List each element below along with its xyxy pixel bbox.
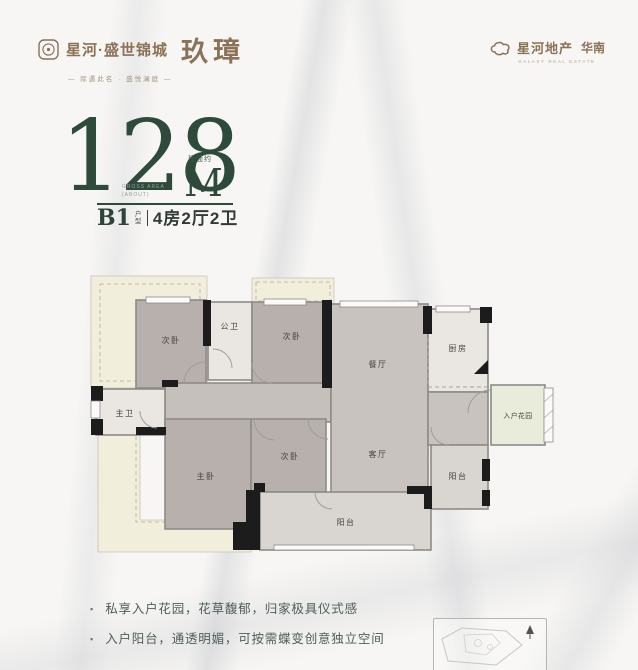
floorplan-svg: 次卧 公卫 次卧 餐厅 厨房 入户花园 主卫 主卧 次卧 客厅 阳台 阳台	[78, 262, 562, 574]
area-headline: 128 建面约 M2 Gross area (about)	[60, 112, 238, 202]
bullet-icon: ▪	[90, 601, 93, 618]
developer-region: 华南	[581, 39, 605, 56]
room-label-dining: 餐厅	[369, 360, 388, 369]
feature-text: 入户阳台，通透明媚，可按需蝶变创意独立空间	[105, 631, 384, 648]
room-label-entry-garden: 入户花园	[503, 411, 532, 420]
room-label-bath-master: 主卫	[116, 408, 135, 418]
unit-type-label: 户型	[135, 211, 143, 225]
feature-item: ▪ 入户阳台，通透明媚，可按需蝶变创意独立空间	[90, 631, 385, 648]
unit-summary: B1 户型 4房2厅2卫	[97, 207, 238, 229]
project-tagline: — 际遇此名 · 盛悦澜庭 —	[68, 73, 245, 83]
unit-spec: 4房2厅2卫	[153, 210, 238, 227]
room-label-bedroom-master: 主卧	[197, 471, 216, 481]
area-note: Gross area (about)	[122, 184, 165, 199]
developer-logo: 星河地产 华南 GALAXY REAL ESTATE	[488, 38, 605, 64]
floorplan-poster: 星河·盛世锦城 玖璋 — 际遇此名 · 盛悦澜庭 — 星河地产 华南 GALAX…	[0, 0, 638, 670]
project-name: 星河·盛世锦城	[66, 39, 168, 60]
unit-code: B1	[97, 207, 131, 229]
feature-text: 私享入户花园，花草馥郁，归家极具仪式感	[105, 601, 358, 618]
room-label-bedroom-top-mid: 次卧	[283, 331, 302, 341]
developer-name-en: GALAXY REAL ESTATE	[518, 59, 596, 64]
area-unit: M2	[184, 164, 234, 202]
product-name: 玖璋	[181, 30, 245, 69]
site-minimap-sketch	[434, 619, 544, 670]
feature-list: ▪ 私享入户花园，花草馥郁，归家极具仪式感 ▪ 入户阳台，通透明媚，可按需蝶变创…	[90, 601, 385, 661]
unit-divider	[147, 210, 148, 226]
project-logo: 星河·盛世锦城 玖璋 — 际遇此名 · 盛悦澜庭 —	[38, 30, 245, 83]
seal-icon	[38, 39, 59, 60]
room-label-bath-public: 公卫	[221, 322, 240, 331]
room-label-bedroom-mid: 次卧	[281, 451, 300, 461]
site-minimap	[433, 618, 547, 670]
feature-item: ▪ 私享入户花园，花草馥郁，归家极具仪式感	[90, 601, 385, 618]
room-label-balcony-south: 阳台	[337, 517, 356, 527]
developer-name: 星河地产	[517, 38, 573, 57]
bullet-icon: ▪	[90, 631, 93, 648]
north-arrow-icon	[526, 625, 534, 639]
floorplan: 次卧 公卫 次卧 餐厅 厨房 入户花园 主卫 主卧 次卧 客厅 阳台 阳台	[78, 262, 562, 574]
cloud-logo-icon	[488, 39, 512, 56]
room-label-bedroom-top-left: 次卧	[162, 335, 181, 345]
room-label-kitchen: 厨房	[449, 343, 468, 353]
room-label-living: 客厅	[369, 449, 388, 459]
room-label-balcony-entry: 阳台	[449, 471, 468, 481]
